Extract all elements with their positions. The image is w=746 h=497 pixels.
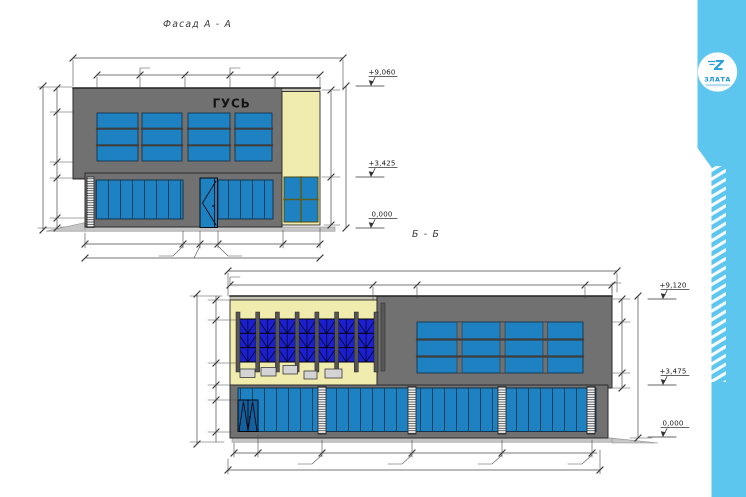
facade-b-storefront (238, 388, 596, 432)
level-label: +9,120 (659, 282, 686, 290)
logo-name: ЗЛАТА (704, 76, 731, 84)
level-label: 0,000 (662, 420, 683, 428)
accent-stripes (712, 166, 727, 382)
drawing-canvas: Фасад А - А (0, 0, 746, 497)
facade-b-title: Б - Б (412, 229, 440, 240)
architectural-sheet: Фасад А - А (0, 0, 746, 497)
facade-b-upper-windows (417, 322, 583, 373)
logo-tagline-bar (706, 84, 730, 86)
door-handle (249, 416, 251, 418)
facade-a-sign: ГУСЬ (212, 97, 250, 111)
facade-a-service-ladder (87, 177, 94, 228)
door-handle (212, 205, 214, 207)
level-label: 0,000 (371, 211, 392, 219)
facade-a-entrance-door (200, 178, 218, 228)
logo-monogram: Z (713, 58, 724, 74)
facade-b-entrance-door (238, 400, 258, 432)
pilaster (381, 303, 385, 371)
brand-logo: Z ЗЛАТА (698, 53, 737, 92)
level-label: +3,475 (659, 368, 686, 376)
level-label: +3,425 (368, 160, 395, 168)
level-label: +9,060 (368, 69, 395, 77)
facade-b-ground (232, 438, 658, 443)
facade-a-title: Фасад А - А (163, 19, 232, 30)
facade-a-corner-bay-window (284, 177, 318, 222)
